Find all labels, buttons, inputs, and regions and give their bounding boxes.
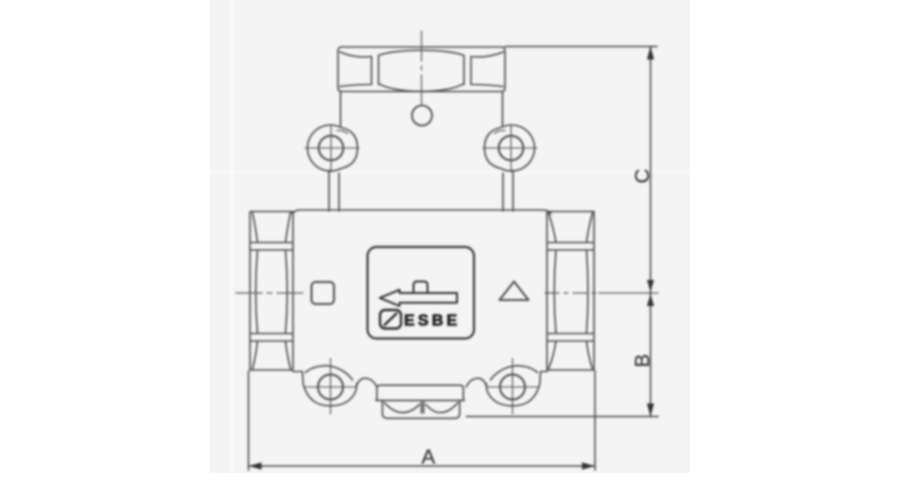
svg-text:B: B xyxy=(631,354,654,368)
svg-text:ESBE: ESBE xyxy=(404,313,460,330)
svg-text:A: A xyxy=(422,446,436,469)
svg-text:C: C xyxy=(631,169,654,184)
